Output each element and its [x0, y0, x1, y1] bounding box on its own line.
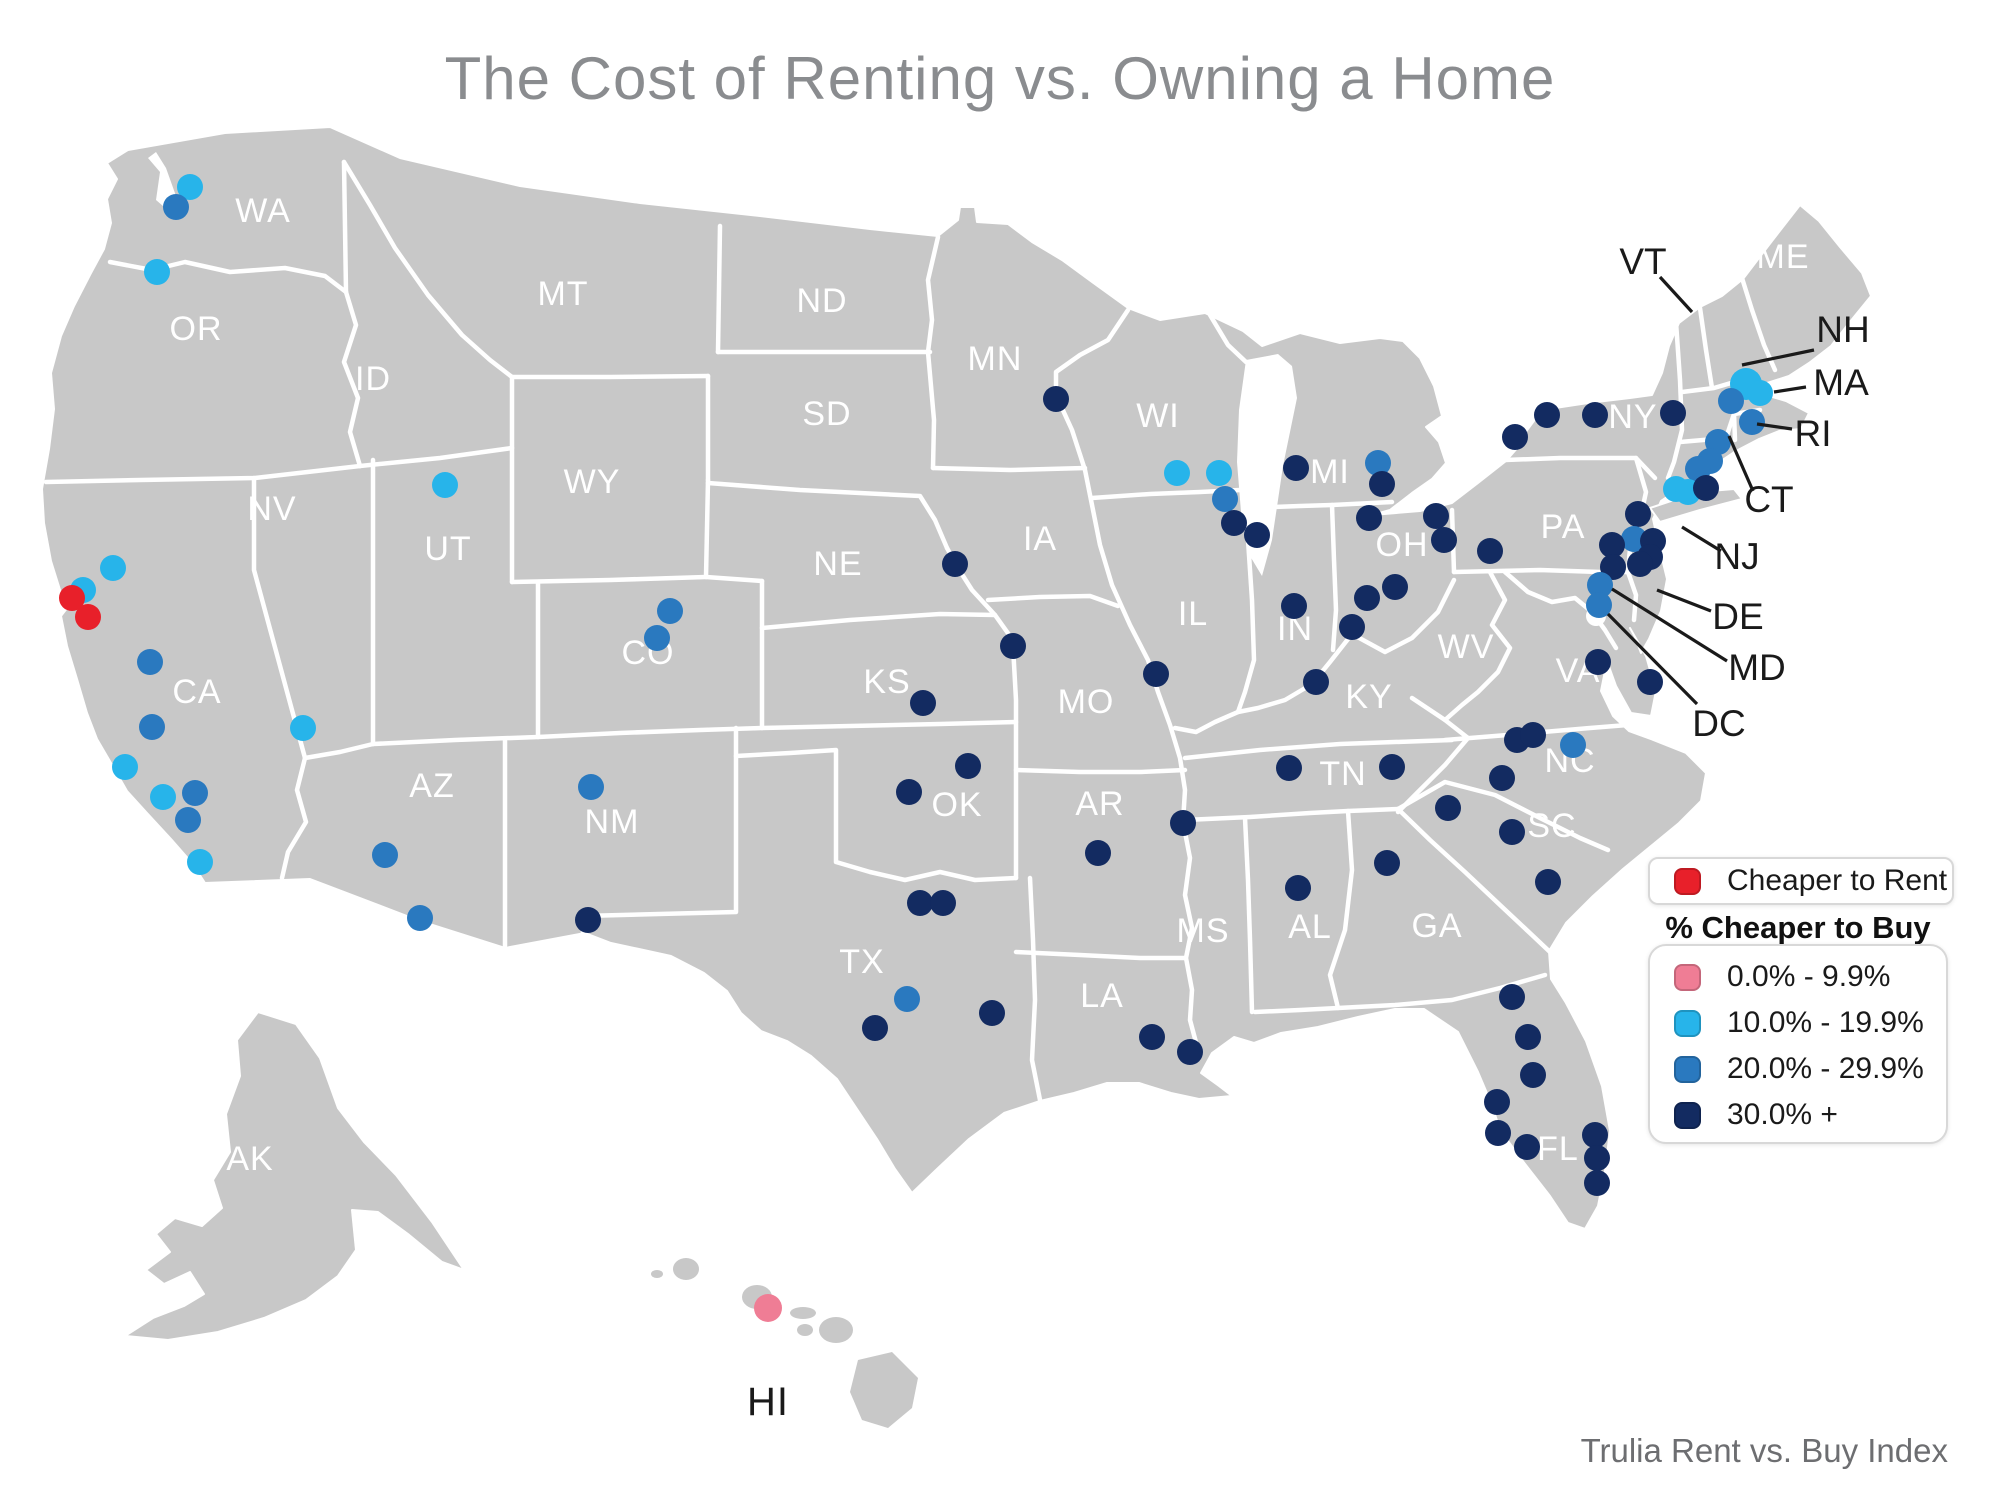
state-label-OK: OK [931, 786, 982, 824]
state-label-GA: GA [1411, 907, 1462, 945]
state-label-TN: TN [1319, 755, 1366, 793]
callout-line-VT [1660, 277, 1692, 312]
city-dot [907, 890, 933, 916]
city-dot [1499, 819, 1525, 845]
city-dot [175, 807, 201, 833]
city-dot [1431, 527, 1457, 553]
state-label-IA: IA [1023, 520, 1057, 558]
state-label-MT: MT [537, 275, 588, 313]
city-dot [644, 625, 670, 651]
state-label-AZ: AZ [409, 767, 454, 805]
city-dot [1281, 593, 1307, 619]
city-dot [657, 598, 683, 624]
state-label-FL: FL [1537, 1130, 1579, 1168]
legend-buy-item-3: 30.0% + [1650, 1092, 1946, 1138]
state-label-MN: MN [968, 340, 1023, 378]
city-dot [1477, 538, 1503, 564]
callout-label-VT: VT [1619, 241, 1666, 282]
city-dot [182, 780, 208, 806]
state-label-MI: MI [1310, 453, 1350, 491]
legend-swatch-p30 [1674, 1102, 1701, 1129]
us-map: WAORCANVIDUTAZMTWYCONMNDSDNEKSOKTXMNIAMO… [0, 0, 2000, 1500]
legend-item-label: 10.0% - 19.9% [1727, 1006, 1924, 1040]
attribution: Trulia Rent vs. Buy Index [1581, 1432, 1948, 1470]
city-dot [1043, 386, 1069, 412]
city-dot [144, 259, 170, 285]
legend-swatch-p10 [1674, 1010, 1701, 1037]
city-dot [754, 1294, 782, 1322]
rent-swatch [1674, 868, 1701, 895]
legend-buy-heading: % Cheaper to Buy [1640, 910, 1956, 946]
city-dot [1283, 455, 1309, 481]
state-label-WV: WV [1438, 628, 1495, 666]
city-dot [1000, 633, 1026, 659]
city-dot [1534, 402, 1560, 428]
legend-item-label: 20.0% - 29.9% [1727, 1052, 1924, 1086]
legend-swatch-p0 [1674, 964, 1701, 991]
callout-line-MA [1774, 387, 1806, 392]
state-label-OH: OH [1376, 526, 1429, 564]
legend-buy-item-1: 10.0% - 19.9% [1650, 1000, 1946, 1046]
city-dot [100, 555, 126, 581]
state-label-NE: NE [813, 545, 862, 583]
legend-buy-item-0: 0.0% - 9.9% [1650, 954, 1946, 1000]
city-dot [1515, 1024, 1541, 1050]
city-dot [1514, 1134, 1540, 1160]
city-dot [1585, 649, 1611, 675]
city-dot [1584, 1170, 1610, 1196]
rent-label: Cheaper to Rent [1727, 864, 1947, 898]
city-dot [1143, 661, 1169, 687]
city-dot [942, 551, 968, 577]
city-dot [1369, 471, 1395, 497]
city-dot [1206, 460, 1232, 486]
state-label-OR: OR [170, 310, 223, 348]
state-label-MO: MO [1058, 683, 1115, 721]
legend-buy-item-2: 20.0% - 29.9% [1650, 1046, 1946, 1092]
state-label-NY: NY [1608, 398, 1657, 436]
callout-label-DE: DE [1712, 596, 1763, 637]
city-dot [163, 194, 189, 220]
city-dot [1221, 510, 1247, 536]
city-dot [575, 907, 601, 933]
state-label-KS: KS [863, 663, 910, 701]
city-dot [1356, 505, 1382, 531]
state-label-WY: WY [564, 463, 621, 501]
state-label-TX: TX [839, 943, 884, 981]
city-dot [1520, 722, 1546, 748]
state-label-NM: NM [585, 803, 640, 841]
state-label-IL: IL [1178, 595, 1208, 633]
city-dot [1354, 585, 1380, 611]
city-dot [1582, 1122, 1608, 1148]
state-label-KY: KY [1345, 678, 1392, 716]
city-dot [1637, 669, 1663, 695]
city-dot [894, 986, 920, 1012]
legend-item-label: 0.0% - 9.9% [1727, 960, 1890, 994]
city-dot [1485, 1120, 1511, 1146]
callout-label-NH: NH [1816, 309, 1869, 350]
city-dot [1560, 732, 1586, 758]
city-dot [139, 714, 165, 740]
state-label-AR: AR [1075, 785, 1124, 823]
state-label-ID: ID [355, 360, 391, 398]
city-dot [910, 690, 936, 716]
callout-label-DC: DC [1692, 703, 1745, 744]
state-label-LA: LA [1080, 977, 1124, 1015]
legend-item-label: 30.0% + [1727, 1098, 1838, 1132]
city-dot [1285, 875, 1311, 901]
state-label-WI: WI [1136, 397, 1180, 435]
city-dot [1435, 795, 1461, 821]
city-dot [1502, 424, 1528, 450]
legend-buy-box: 0.0% - 9.9%10.0% - 19.9%20.0% - 29.9%30.… [1648, 944, 1948, 1144]
city-dot [1584, 1145, 1610, 1171]
alaska [125, 1012, 464, 1340]
city-dot [137, 649, 163, 675]
state-label-UT: UT [424, 530, 471, 568]
city-dot [979, 1000, 1005, 1026]
state-label-SC: SC [1527, 807, 1576, 845]
city-dot [1339, 614, 1365, 640]
city-dot [1423, 503, 1449, 529]
callout-label-NJ: NJ [1714, 536, 1759, 577]
city-dot [1627, 551, 1653, 577]
callout-line-DE [1657, 590, 1711, 611]
callout-label-RI: RI [1795, 413, 1832, 454]
city-dot [1085, 840, 1111, 866]
city-dot [1625, 501, 1651, 527]
city-dot [1379, 754, 1405, 780]
city-dot [1276, 755, 1302, 781]
state-label-PA: PA [1541, 508, 1586, 546]
city-dot [187, 849, 213, 875]
state-label-ME: ME [1757, 238, 1810, 276]
callout-label-MA: MA [1813, 362, 1869, 403]
city-dot [1499, 984, 1525, 1010]
state-label-CA: CA [172, 673, 221, 711]
city-dot [75, 604, 101, 630]
city-dot [1177, 1039, 1203, 1065]
city-dot [1303, 669, 1329, 695]
city-dot [112, 754, 138, 780]
city-dot [1484, 1089, 1510, 1115]
city-dot [578, 774, 604, 800]
city-dot [407, 905, 433, 931]
state-label-WA: WA [235, 192, 291, 230]
city-dot [862, 1015, 888, 1041]
callout-label-CT: CT [1744, 479, 1793, 520]
city-dot [1582, 402, 1608, 428]
city-dot [372, 842, 398, 868]
city-dot [1535, 869, 1561, 895]
city-dot [955, 753, 981, 779]
city-dot [1382, 574, 1408, 600]
city-dot [1693, 475, 1719, 501]
state-label-AL: AL [1288, 908, 1332, 946]
city-dot [1660, 400, 1686, 426]
city-dot [1718, 388, 1744, 414]
city-dot [1374, 850, 1400, 876]
legend-swatch-p20 [1674, 1056, 1701, 1083]
city-dot [1747, 380, 1773, 406]
city-dot [150, 784, 176, 810]
state-label-NV: NV [247, 490, 296, 528]
state-label-MS: MS [1177, 912, 1230, 950]
city-dot [1164, 460, 1190, 486]
city-dot [896, 779, 922, 805]
city-dot [1244, 522, 1270, 548]
city-dot [1489, 765, 1515, 791]
city-dot [1139, 1024, 1165, 1050]
city-dot [432, 472, 458, 498]
state-label-SD: SD [802, 395, 851, 433]
city-dot [930, 890, 956, 916]
city-dot [1520, 1062, 1546, 1088]
city-dot [1212, 486, 1238, 512]
legend-rent-box: Cheaper to Rent [1648, 857, 1954, 905]
state-label-AK: AK [226, 1140, 273, 1178]
city-dot [1170, 810, 1196, 836]
callout-label-MD: MD [1728, 647, 1786, 688]
state-label-ND: ND [796, 282, 847, 320]
city-dot [1739, 409, 1765, 435]
state-label-HI: HI [747, 1380, 789, 1424]
city-dot [290, 715, 316, 741]
